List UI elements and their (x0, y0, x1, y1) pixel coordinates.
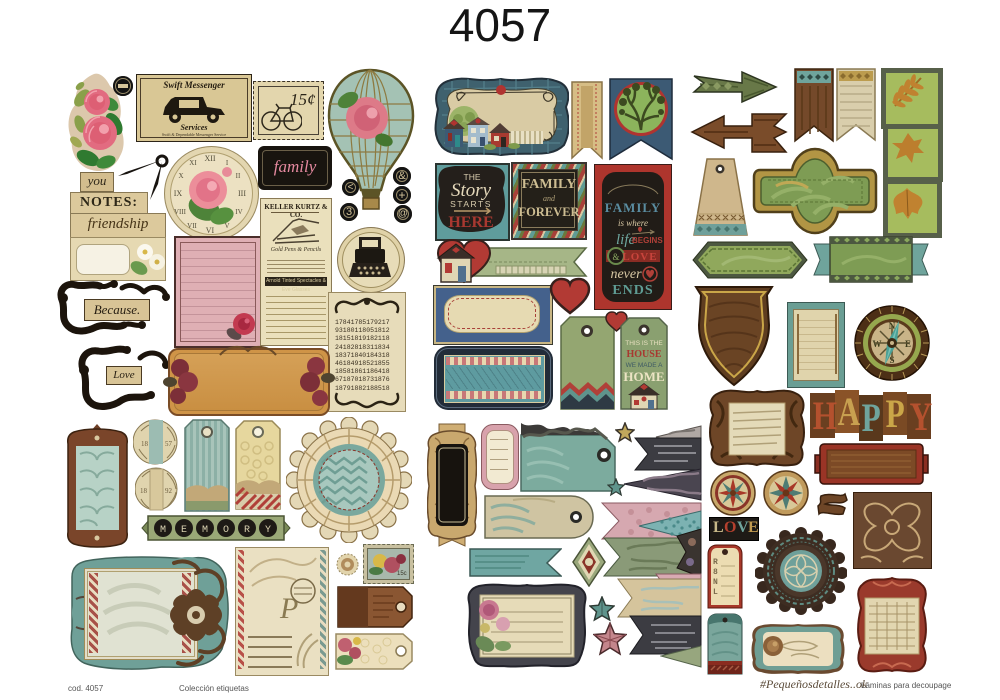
svg-text:W: W (873, 339, 882, 349)
svg-text:XI: XI (189, 159, 197, 167)
svg-text:STARTS: STARTS (450, 199, 492, 209)
svg-text:WE MADE A: WE MADE A (626, 362, 664, 369)
svg-text:VI: VI (206, 226, 215, 235)
svg-text:8: 8 (713, 568, 718, 577)
svg-text:R: R (244, 525, 250, 536)
svg-text:E: E (181, 525, 187, 536)
svg-text:is where: is where (618, 218, 648, 228)
svg-text:57: 57 (165, 440, 173, 448)
svg-text:VII: VII (187, 222, 197, 230)
svg-text:BEGINS: BEGINS (632, 236, 663, 245)
svg-text:LOVE: LOVE (622, 251, 657, 263)
svg-text:Story: Story (451, 180, 492, 201)
svg-text:N: N (713, 578, 718, 587)
svg-text:Y: Y (265, 525, 271, 536)
svg-text:18: 18 (141, 440, 149, 448)
svg-text:ENDS: ENDS (612, 283, 653, 298)
svg-text:HOME: HOME (623, 369, 664, 384)
svg-text:M: M (160, 525, 166, 536)
svg-text:VIII: VIII (174, 208, 187, 216)
svg-text:III: III (238, 189, 246, 198)
svg-text:L: L (713, 588, 718, 597)
svg-text:I: I (226, 159, 229, 167)
svg-text:E: E (905, 339, 911, 349)
svg-text:IV: IV (235, 208, 242, 216)
svg-text:II: II (236, 172, 241, 180)
svg-text:FAMILY: FAMILY (605, 200, 662, 215)
svg-text:THIS IS THE: THIS IS THE (625, 340, 663, 347)
svg-text:never: never (610, 267, 642, 282)
svg-text:HOUSE: HOUSE (626, 349, 661, 360)
svg-text:HERE: HERE (448, 214, 493, 231)
svg-text:&: & (612, 252, 619, 262)
svg-text:IX: IX (174, 189, 183, 198)
svg-text:R: R (713, 558, 718, 567)
svg-text:O: O (223, 525, 229, 536)
svg-text:92: 92 (165, 487, 173, 495)
svg-text:X: X (178, 172, 183, 180)
svg-text:18: 18 (140, 487, 148, 495)
svg-text:XII: XII (204, 154, 215, 163)
svg-text:M: M (202, 525, 208, 536)
